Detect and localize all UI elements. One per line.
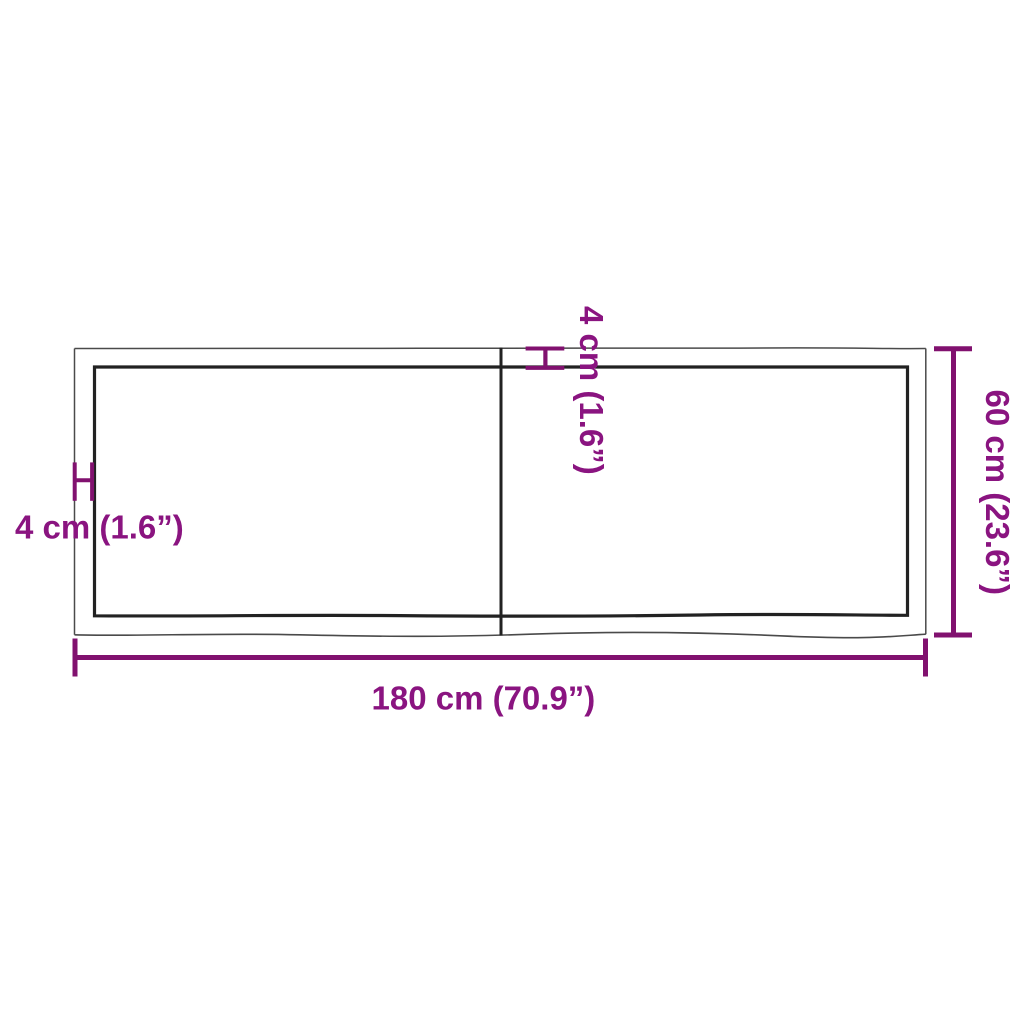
svg-text:180 cm (70.9”): 180 cm (70.9”)	[372, 680, 596, 717]
svg-text:60 cm (23.6”): 60 cm (23.6”)	[979, 390, 1016, 595]
svg-text:4 cm (1.6”): 4 cm (1.6”)	[15, 509, 184, 546]
svg-text:4 cm (1.6”): 4 cm (1.6”)	[573, 306, 610, 475]
